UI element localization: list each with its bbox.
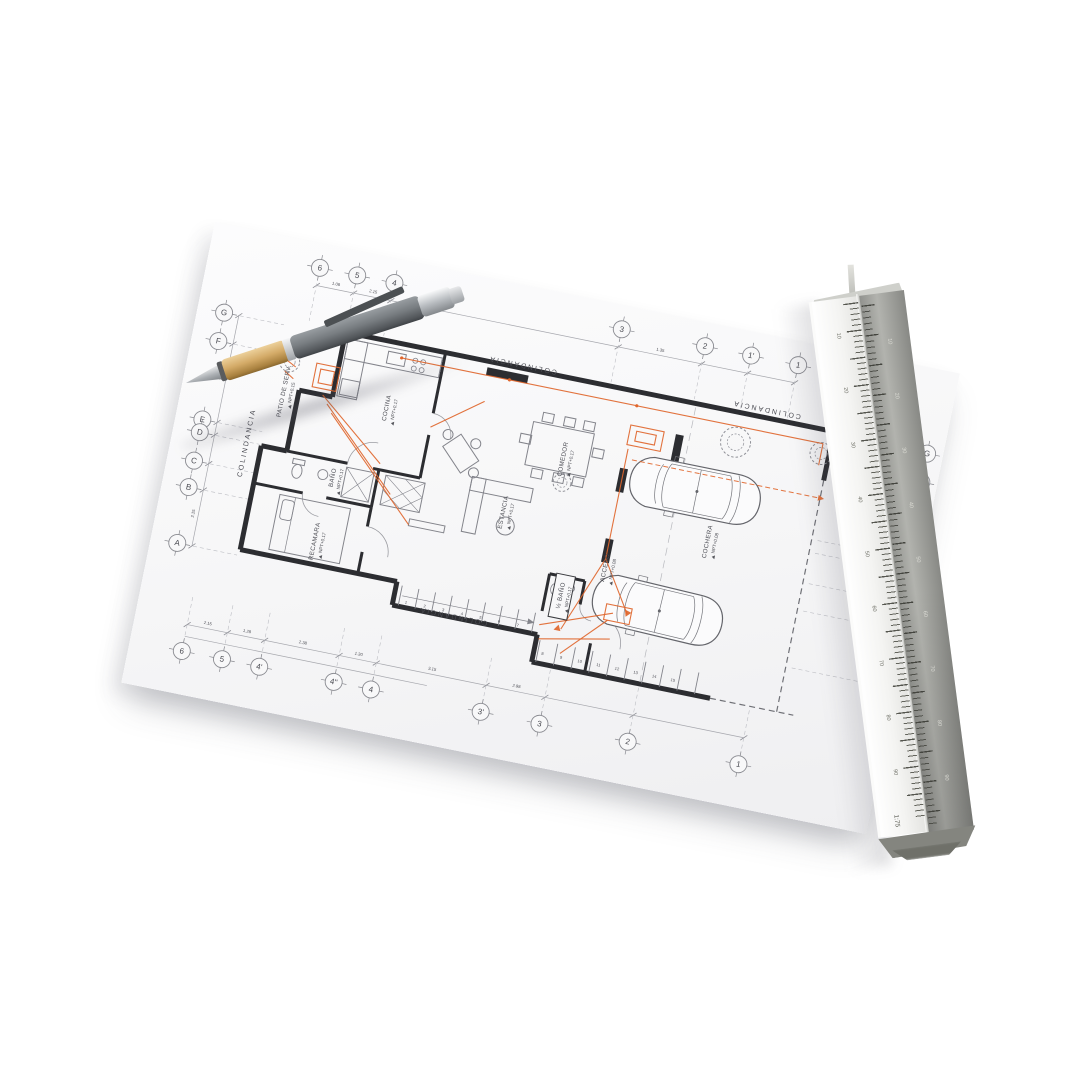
ruler-number: 50 bbox=[914, 556, 921, 563]
ruler-number: 20 bbox=[893, 392, 900, 399]
ruler-number: 90 bbox=[943, 774, 950, 781]
dimension-label: 1.08 bbox=[332, 281, 342, 288]
ruler-number: 20 bbox=[842, 387, 849, 394]
grid-bubble: 1 bbox=[723, 708, 762, 780]
grid-bubble: 2 bbox=[612, 685, 651, 757]
grid-bubble: 3 bbox=[524, 667, 563, 739]
stair-number: 9 bbox=[560, 655, 564, 660]
dimension-label: 2.15 bbox=[203, 620, 213, 627]
pen-tip bbox=[184, 364, 223, 390]
ruler-number: 80 bbox=[885, 714, 892, 721]
dimension-label: 3.15 bbox=[428, 666, 438, 673]
ruler-number: 40 bbox=[907, 502, 914, 509]
dimension-label: 2.38 bbox=[298, 639, 308, 646]
breakfast-table bbox=[436, 418, 495, 483]
grid-bubble: A bbox=[162, 528, 240, 568]
ruler-scale-label: 1:75 bbox=[892, 814, 901, 827]
dimension-label: 2.15 bbox=[369, 288, 379, 295]
ruler-number: 50 bbox=[863, 551, 870, 558]
grid-bubble: 4'' bbox=[318, 625, 357, 697]
dimension-label: 1.28 bbox=[243, 628, 253, 635]
stair-number: 1 bbox=[404, 600, 408, 605]
stair-number: 7 bbox=[516, 622, 520, 627]
stair-number: 11 bbox=[596, 662, 602, 668]
tree-icon bbox=[718, 425, 753, 460]
grid-bubble: 3' bbox=[465, 655, 504, 727]
grid-bubble: 4' bbox=[244, 610, 283, 682]
stair-number: 8 bbox=[541, 651, 545, 656]
ruler-number: 90 bbox=[892, 769, 899, 776]
ruler-number: 30 bbox=[849, 442, 856, 449]
stair-number: 12 bbox=[614, 666, 620, 672]
ruler-number: 60 bbox=[870, 605, 877, 612]
stair-number: 14 bbox=[652, 673, 658, 679]
photo-scene: 1.082.151.352.151.282.381.303.152.981.08… bbox=[0, 0, 1080, 1080]
ruler-number: 70 bbox=[929, 665, 936, 672]
ruler-number: 70 bbox=[877, 660, 884, 667]
stair-number: 6 bbox=[498, 618, 502, 623]
dimension-label: 2.98 bbox=[512, 683, 522, 690]
ruler-number: 10 bbox=[886, 338, 893, 345]
dimension-label: 1.35 bbox=[656, 347, 666, 354]
border-label-colindancia: COLINDANCIA bbox=[418, 606, 488, 627]
ruler-number: 10 bbox=[835, 332, 842, 339]
car-top-view bbox=[624, 449, 765, 534]
dimension-label: 1.30 bbox=[354, 651, 364, 658]
ruler-number: 60 bbox=[921, 611, 928, 618]
stair-number: 13 bbox=[633, 670, 639, 676]
ruler-number: 40 bbox=[856, 496, 863, 503]
grid-bubble: 5 bbox=[207, 603, 246, 675]
stair-number: 10 bbox=[577, 658, 583, 664]
cars bbox=[585, 446, 765, 658]
stair-number: 15 bbox=[670, 677, 676, 683]
grid-bubble: 6 bbox=[166, 595, 205, 667]
walls bbox=[230, 320, 850, 715]
ruler-number: 30 bbox=[900, 447, 907, 454]
grid-bubble: 4 bbox=[356, 633, 395, 705]
ruler-number: 80 bbox=[936, 720, 943, 727]
dimension-label: 2.15 bbox=[190, 508, 197, 518]
